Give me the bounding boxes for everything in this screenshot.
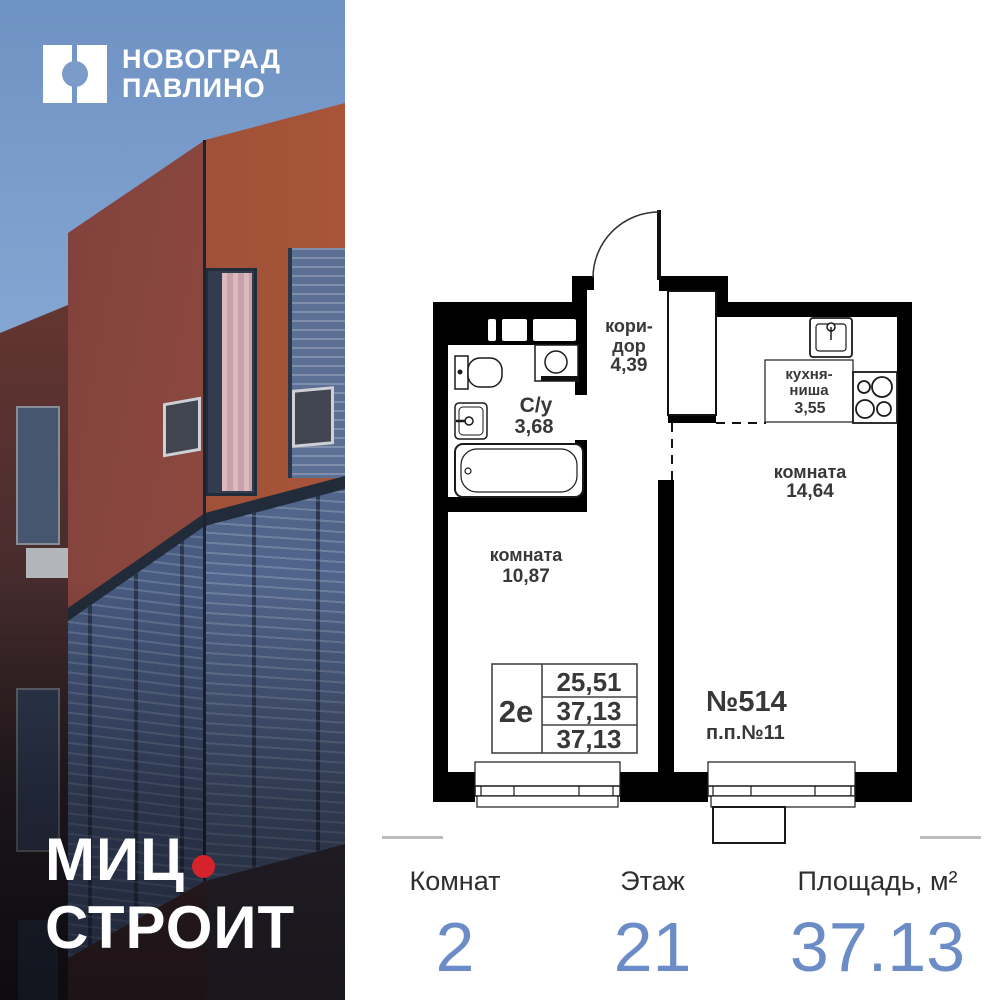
type-table-row1: 25,51 (556, 667, 621, 697)
stat-area-label: Площадь, м² (760, 866, 995, 896)
washing-machine (535, 345, 578, 381)
stat-rooms: Комнат 2 (380, 866, 530, 984)
corridor-label-line2: дор (612, 336, 645, 356)
stat-floor: Этаж 21 (580, 866, 725, 984)
kitchen-area: 3,55 (794, 400, 825, 417)
separator-line-right (920, 836, 981, 839)
type-table-type: 2е (499, 694, 533, 729)
bathroom-sink (455, 403, 487, 439)
stove (853, 372, 897, 423)
ventilation-shaft (668, 291, 716, 415)
window-right (708, 762, 855, 807)
kitchen-sink (810, 318, 852, 357)
bathroom-area: 3,68 (515, 416, 554, 438)
stat-floor-value: 21 (580, 910, 725, 984)
balcony (713, 807, 785, 843)
separator-line-left (382, 836, 443, 839)
project-position: п.п.№11 (706, 722, 785, 744)
stat-area: Площадь, м² 37.13 (760, 866, 995, 984)
window-left (475, 762, 620, 807)
room-large-label: комната (774, 462, 848, 482)
floor-plan: кори- дор 4,39 С/у 3,68 кухня- ниша 3,55… (0, 0, 1000, 1000)
entrance-door (593, 210, 661, 280)
room-large-area: 14,64 (786, 481, 834, 502)
stat-rooms-value: 2 (380, 910, 530, 984)
stat-floor-label: Этаж (580, 866, 725, 896)
type-table-row3: 37,13 (556, 724, 621, 754)
corridor-label-line1: кори- (605, 316, 653, 336)
stat-area-value: 37.13 (760, 910, 995, 984)
apartment-number: №514 (706, 686, 787, 718)
type-table-row2: 37,13 (556, 696, 621, 726)
corridor-area: 4,39 (611, 355, 648, 376)
kitchen-label-line2: ниша (789, 382, 829, 399)
stat-rooms-label: Комнат (380, 866, 530, 896)
room-small-area: 10,87 (502, 566, 550, 587)
bathroom-label: С/у (520, 394, 553, 417)
bathtub (455, 444, 583, 497)
room-small-label: комната (490, 545, 564, 565)
kitchen-zone-dashed-line (672, 423, 766, 481)
kitchen-label-line1: кухня- (785, 366, 832, 383)
toilet (455, 356, 502, 389)
